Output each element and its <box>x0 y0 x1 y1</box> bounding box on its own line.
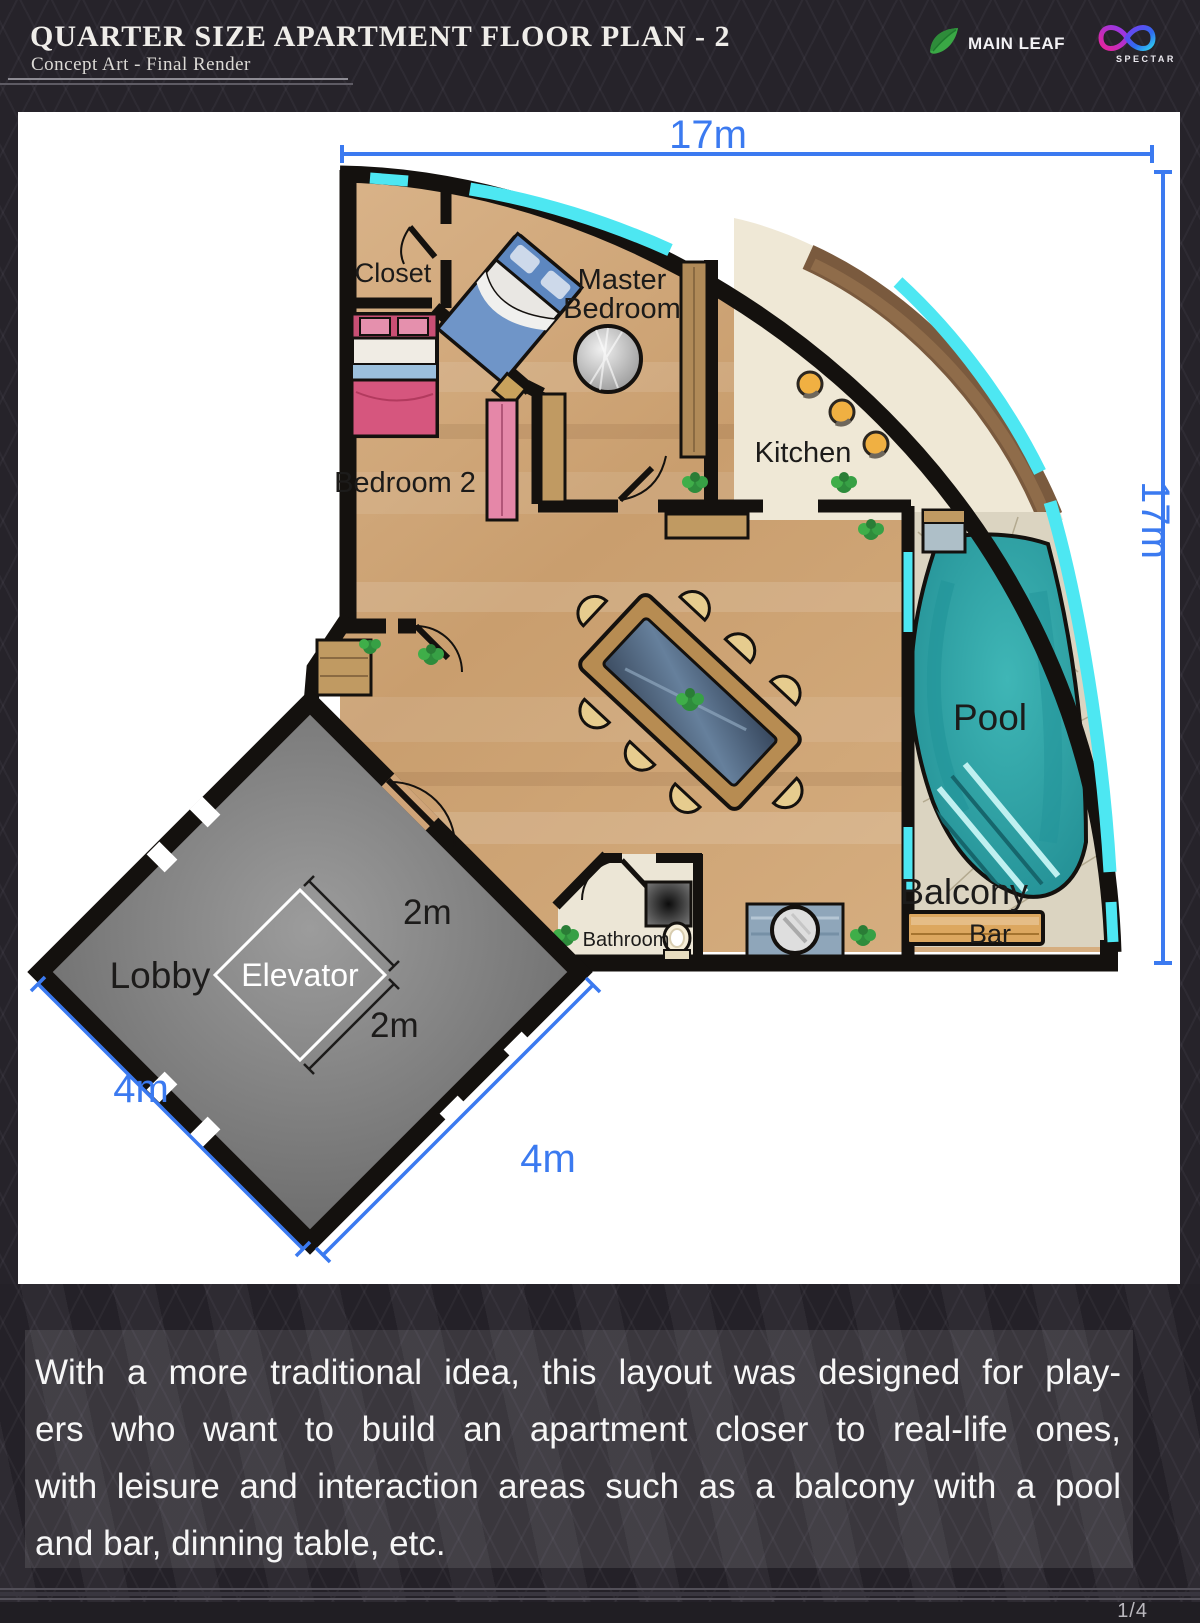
spectar-logo: SPECTAR <box>1094 20 1160 64</box>
spectar-label: SPECTAR <box>1116 54 1176 64</box>
kitchen-floor <box>734 218 1063 520</box>
label-balcony: Balcony <box>900 871 1028 912</box>
leaf-icon <box>928 26 960 61</box>
description-line: and bar, dinning table, etc. <box>35 1515 1121 1572</box>
plan-height-dimension <box>1154 172 1172 963</box>
rug-mirror-table <box>747 904 843 956</box>
footer-rule <box>0 1588 1200 1590</box>
label-dim-4m-right: 4m <box>520 1137 576 1181</box>
label-elevator: Elevator <box>241 957 359 993</box>
description-line: ers who want to build an apartment close… <box>35 1401 1121 1458</box>
label-master-1: Master <box>578 264 667 296</box>
label-lobby: Lobby <box>110 955 211 996</box>
description-section: With a more traditional idea, this layou… <box>0 1284 1200 1623</box>
main-leaf-logo: MAIN LEAF <box>928 26 1065 61</box>
shower <box>646 882 691 926</box>
label-dim-2m-top: 2m <box>403 893 452 932</box>
plan-width-dimension <box>342 145 1152 163</box>
hall-closet <box>541 394 565 502</box>
label-dim-2m-bottom: 2m <box>370 1006 419 1045</box>
label-dim-4m-left: 4m <box>113 1067 169 1111</box>
header-rule-2 <box>0 83 353 85</box>
footer-rule <box>0 1598 1200 1600</box>
page-title: QUARTER SIZE APARTMENT FLOOR PLAN - 2 <box>30 20 731 54</box>
footer-bar <box>0 1602 1200 1623</box>
label-bar: Bar <box>969 919 1011 949</box>
floor-plan-panel: Closet Master Bedroom Bedroom 2 Kitchen … <box>18 112 1180 1284</box>
floor-plan: Closet Master Bedroom Bedroom 2 Kitchen … <box>18 112 1180 1284</box>
bedroom2-bed <box>352 314 437 436</box>
label-closet: Closet <box>355 258 432 288</box>
description-box: With a more traditional idea, this layou… <box>25 1330 1133 1568</box>
page-subtitle: Concept Art - Final Render <box>31 54 251 76</box>
label-dim-17m-top: 17m <box>669 113 747 157</box>
label-bathroom: Bathroom <box>583 929 670 951</box>
label-master-2: Bedroom <box>563 293 681 325</box>
description-line: with leisure and interaction areas such … <box>35 1458 1121 1515</box>
description-line: With a more traditional idea, this layou… <box>35 1344 1121 1401</box>
main-leaf-label: MAIN LEAF <box>968 34 1065 54</box>
page-number: 1/4 <box>1117 1600 1148 1623</box>
label-pool: Pool <box>953 697 1027 738</box>
label-kitchen: Kitchen <box>755 437 852 469</box>
label-bedroom2: Bedroom 2 <box>334 467 476 499</box>
footer-rule <box>0 1592 1200 1596</box>
label-dim-17m-right: 17m <box>1133 481 1177 559</box>
header-rule <box>8 78 348 80</box>
